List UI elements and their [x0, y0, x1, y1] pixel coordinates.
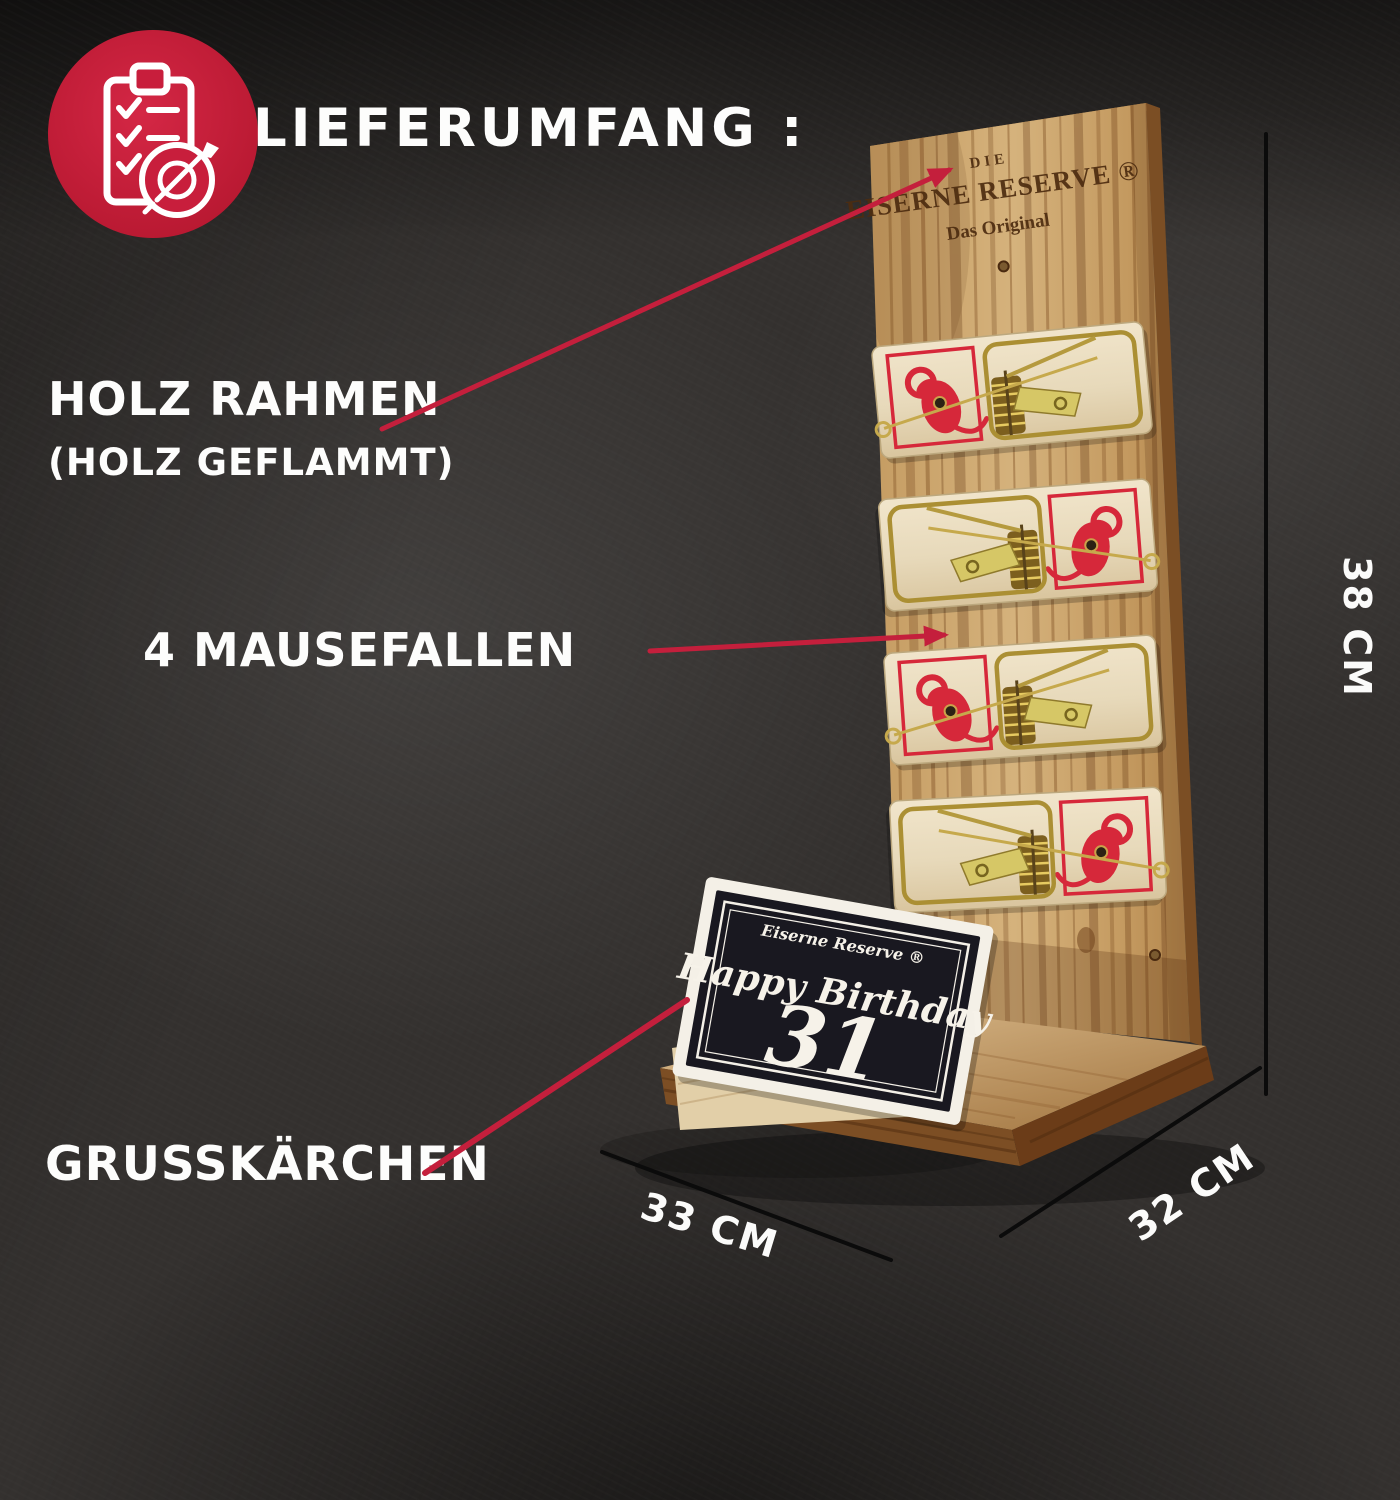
- mousetrap-3: [880, 634, 1167, 771]
- mousetrap-4: [885, 787, 1170, 919]
- product-scene: DIE EISERNE RESERVE ® Das Original: [0, 0, 1400, 1500]
- dimension-label-height: 38 CM: [1335, 556, 1379, 698]
- wooden-stand: DIE EISERNE RESERVE ® Das Original: [658, 80, 1214, 1166]
- card-number: 31: [759, 984, 891, 1102]
- screw: [998, 261, 1009, 272]
- callout-arrow-frame: [382, 170, 949, 429]
- screw: [1150, 950, 1160, 960]
- infographic-canvas: LIEFERUMFANG : HOLZ RAHMEN (HOLZ GEFLAMM…: [0, 0, 1400, 1500]
- mousetrap-2: [874, 478, 1161, 618]
